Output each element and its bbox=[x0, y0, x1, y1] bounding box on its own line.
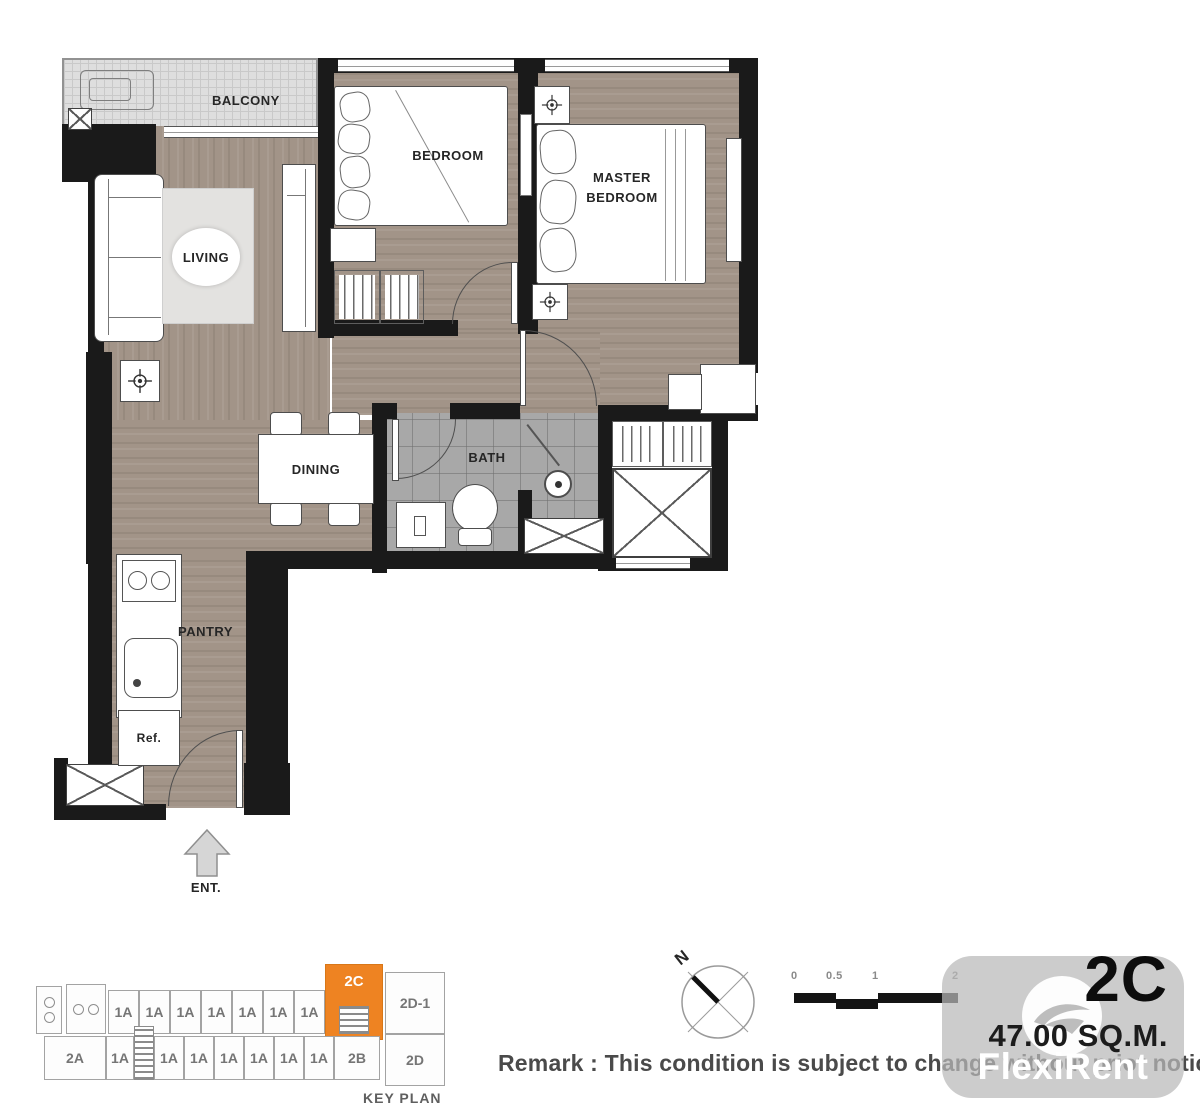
living-label: LIVING bbox=[156, 250, 256, 265]
dining-chair bbox=[328, 412, 360, 436]
wall-entry-bottom bbox=[54, 804, 166, 820]
dining-chair bbox=[270, 412, 302, 436]
bath-label: BATH bbox=[452, 450, 522, 465]
wall-living-bedroom bbox=[318, 58, 334, 338]
master-nightstand bbox=[534, 86, 570, 124]
ceiling-light-box bbox=[120, 360, 160, 402]
master-window bbox=[545, 59, 729, 72]
shower-head-icon bbox=[544, 470, 572, 498]
balcony-label: BALCONY bbox=[212, 93, 280, 108]
keyplan-unit: 1A bbox=[244, 1036, 274, 1080]
crosshair-icon bbox=[539, 291, 561, 313]
crosshair-icon bbox=[127, 368, 153, 394]
wardrobe-icon bbox=[663, 421, 712, 467]
master-nightstand bbox=[532, 284, 568, 320]
dining-chair bbox=[328, 502, 360, 526]
stairs-icon bbox=[134, 1026, 154, 1080]
balcony-sliding-door bbox=[164, 126, 318, 138]
keyplan-unit: 1A bbox=[184, 1036, 214, 1080]
master-cabinet bbox=[700, 364, 756, 414]
scale-tick: 1 bbox=[872, 970, 879, 982]
bedroom-label: BEDROOM bbox=[402, 148, 494, 163]
keyplan-unit: 1A bbox=[232, 990, 263, 1034]
elevator-icon bbox=[36, 986, 62, 1034]
crosshair-icon bbox=[541, 94, 563, 116]
toilet-base bbox=[458, 528, 492, 546]
watermark-brand: FlexiRent bbox=[942, 1046, 1184, 1088]
refrigerator: Ref. bbox=[118, 710, 180, 766]
master-door-leaf bbox=[520, 330, 526, 406]
toilet bbox=[452, 484, 498, 532]
wall-bath-top-stub bbox=[385, 403, 397, 419]
elevator-icon bbox=[66, 984, 106, 1034]
shaft-icon bbox=[66, 764, 144, 806]
entrance-label: ENT. bbox=[180, 880, 232, 895]
keyplan-unit: 2B bbox=[334, 1036, 380, 1080]
bath-door-leaf bbox=[392, 419, 399, 481]
bedroom-window bbox=[338, 59, 514, 72]
sink-icon bbox=[124, 638, 178, 698]
keyplan-unit: 1A bbox=[170, 990, 201, 1034]
keyplan-unit: 1A bbox=[106, 1036, 134, 1080]
wardrobe-icon bbox=[612, 421, 663, 467]
entrance-arrow-icon bbox=[183, 828, 231, 878]
master-bedroom-label: MASTER BEDROOM bbox=[572, 168, 672, 207]
stove-icon bbox=[122, 560, 176, 602]
keyplan-unit: 2D bbox=[385, 1034, 445, 1086]
wardrobe-icon bbox=[380, 270, 424, 324]
keyplan-unit: 1A bbox=[304, 1036, 334, 1080]
scale-bar-segment bbox=[794, 993, 836, 1003]
bath-vanity bbox=[396, 502, 446, 548]
keyplan-unit: 2A bbox=[44, 1036, 106, 1080]
keyplan-unit: 1A bbox=[274, 1036, 304, 1080]
dining-chair bbox=[270, 502, 302, 526]
wall-closet-right bbox=[712, 421, 728, 571]
keyplan-unit: 1A bbox=[214, 1036, 244, 1080]
keyplan-label: KEY PLAN bbox=[363, 1090, 442, 1106]
scale-tick: 0 bbox=[791, 970, 798, 982]
master-window-bench bbox=[726, 138, 742, 262]
balcony-sofa bbox=[80, 70, 154, 110]
wall-pantry-right bbox=[246, 551, 288, 767]
wall-left-pantry bbox=[88, 560, 112, 766]
master-wall-panel bbox=[520, 114, 532, 196]
living-sofa bbox=[94, 174, 164, 342]
keyplan-unit: 1A bbox=[201, 990, 232, 1034]
floor-plan-page: BALCONY LIVING BEDROOM MASTER BEDRO bbox=[0, 0, 1200, 1120]
dining-table: DINING bbox=[258, 434, 374, 504]
tv-cabinet bbox=[282, 164, 316, 332]
shaft-icon bbox=[612, 468, 712, 558]
scale-bar-segment bbox=[836, 999, 878, 1009]
bedroom-nightstand bbox=[330, 228, 376, 262]
unit-name: 2C bbox=[930, 942, 1168, 1016]
shaft-icon bbox=[524, 518, 604, 554]
wall-bath-left bbox=[372, 403, 387, 573]
pantry-label: PANTRY bbox=[178, 624, 233, 639]
balcony-drain-icon bbox=[68, 108, 92, 130]
wardrobe-icon bbox=[334, 270, 380, 324]
keyplan-unit: 1A bbox=[263, 990, 294, 1034]
keyplan-unit: 2D-1 bbox=[385, 972, 445, 1034]
bedroom-door-leaf bbox=[511, 262, 518, 324]
keyplan-unit: 1A bbox=[294, 990, 325, 1034]
refrigerator-label: Ref. bbox=[137, 731, 162, 745]
dining-label: DINING bbox=[292, 462, 341, 477]
stairs-icon bbox=[339, 1006, 369, 1034]
keyplan-unit: 1A bbox=[154, 1036, 184, 1080]
wall-entry-right-block bbox=[244, 763, 290, 815]
scale-tick: 0.5 bbox=[826, 970, 843, 982]
master-stool bbox=[668, 374, 702, 410]
wall-bath-top bbox=[450, 403, 520, 419]
entry-door-leaf bbox=[236, 730, 243, 808]
shaft-threshold bbox=[616, 557, 690, 569]
wall-left-mid bbox=[86, 352, 112, 564]
